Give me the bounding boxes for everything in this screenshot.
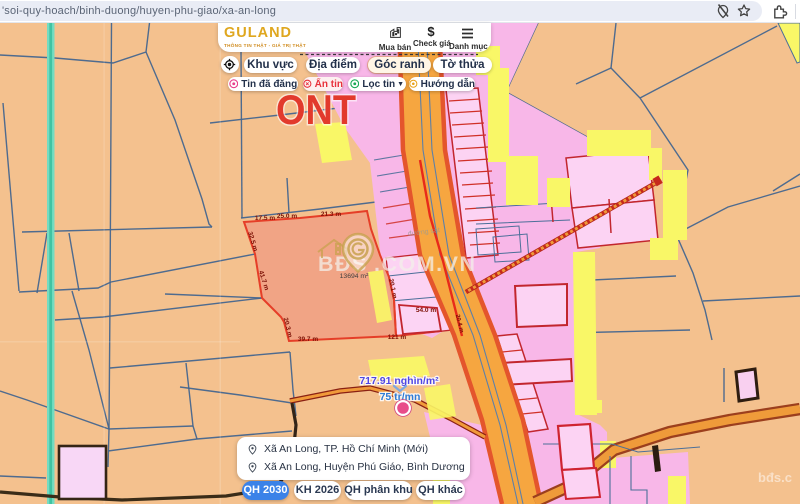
svg-text:ONT: ONT [276,86,356,133]
svg-text:717.91 nghìn/m²: 717.91 nghìn/m² [359,375,439,387]
svg-text:.COM.VN: .COM.VN [374,252,476,276]
svg-text:54.0 m: 54.0 m [416,307,436,314]
svg-text:39.7 m: 39.7 m [298,336,318,343]
svg-text:17.5 m: 17.5 m [255,215,275,222]
svg-text:121 m: 121 m [388,334,407,341]
svg-text:25.0 m: 25.0 m [277,213,297,220]
svg-text:21.3 m: 21.3 m [321,211,341,218]
svg-text:bđs.c: bđs.c [758,470,792,485]
